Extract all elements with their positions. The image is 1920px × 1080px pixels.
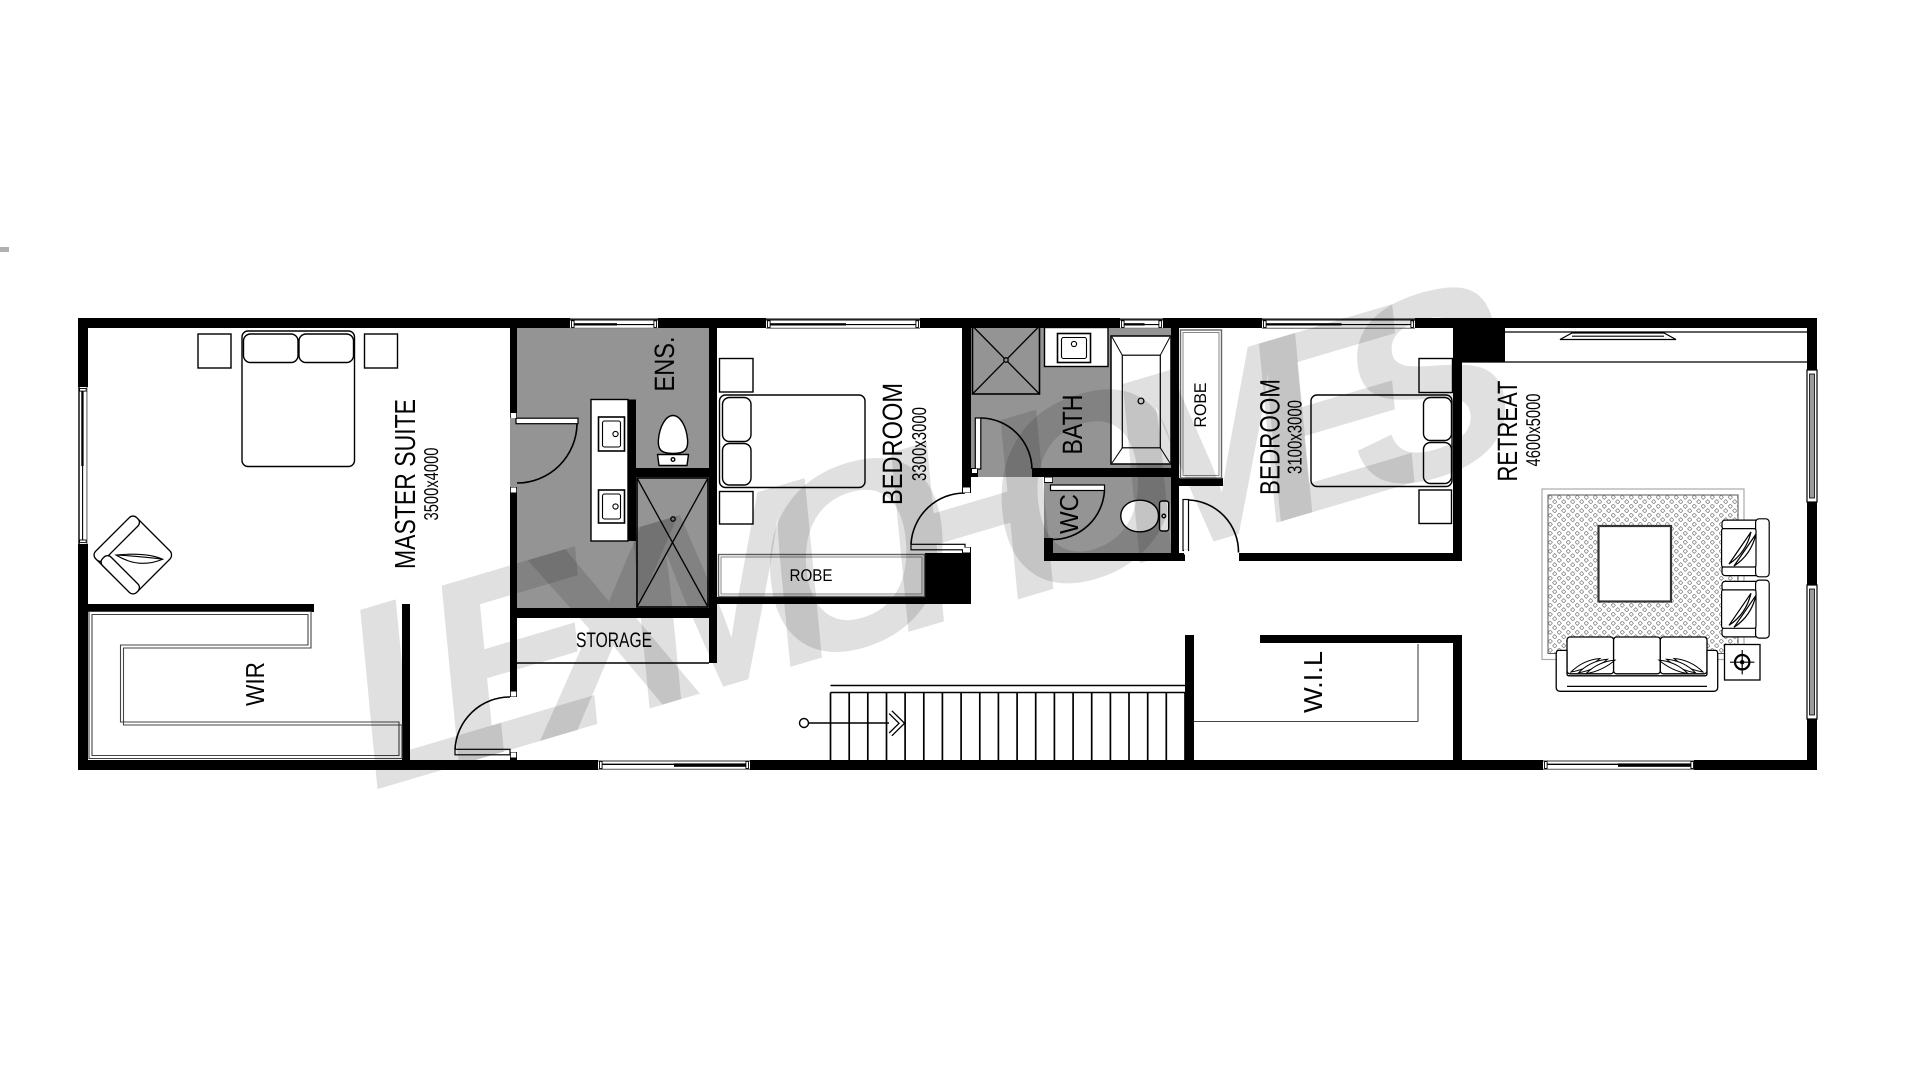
svg-text:4600x5000: 4600x5000 bbox=[1523, 394, 1545, 467]
svg-text:WIR: WIR bbox=[240, 662, 270, 706]
svg-text:ENS.: ENS. bbox=[649, 337, 680, 392]
svg-text:W.I.L: W.I.L bbox=[1298, 651, 1328, 713]
svg-text:3500x4000: 3500x4000 bbox=[421, 448, 443, 521]
svg-text:RETREAT: RETREAT bbox=[1492, 381, 1523, 482]
